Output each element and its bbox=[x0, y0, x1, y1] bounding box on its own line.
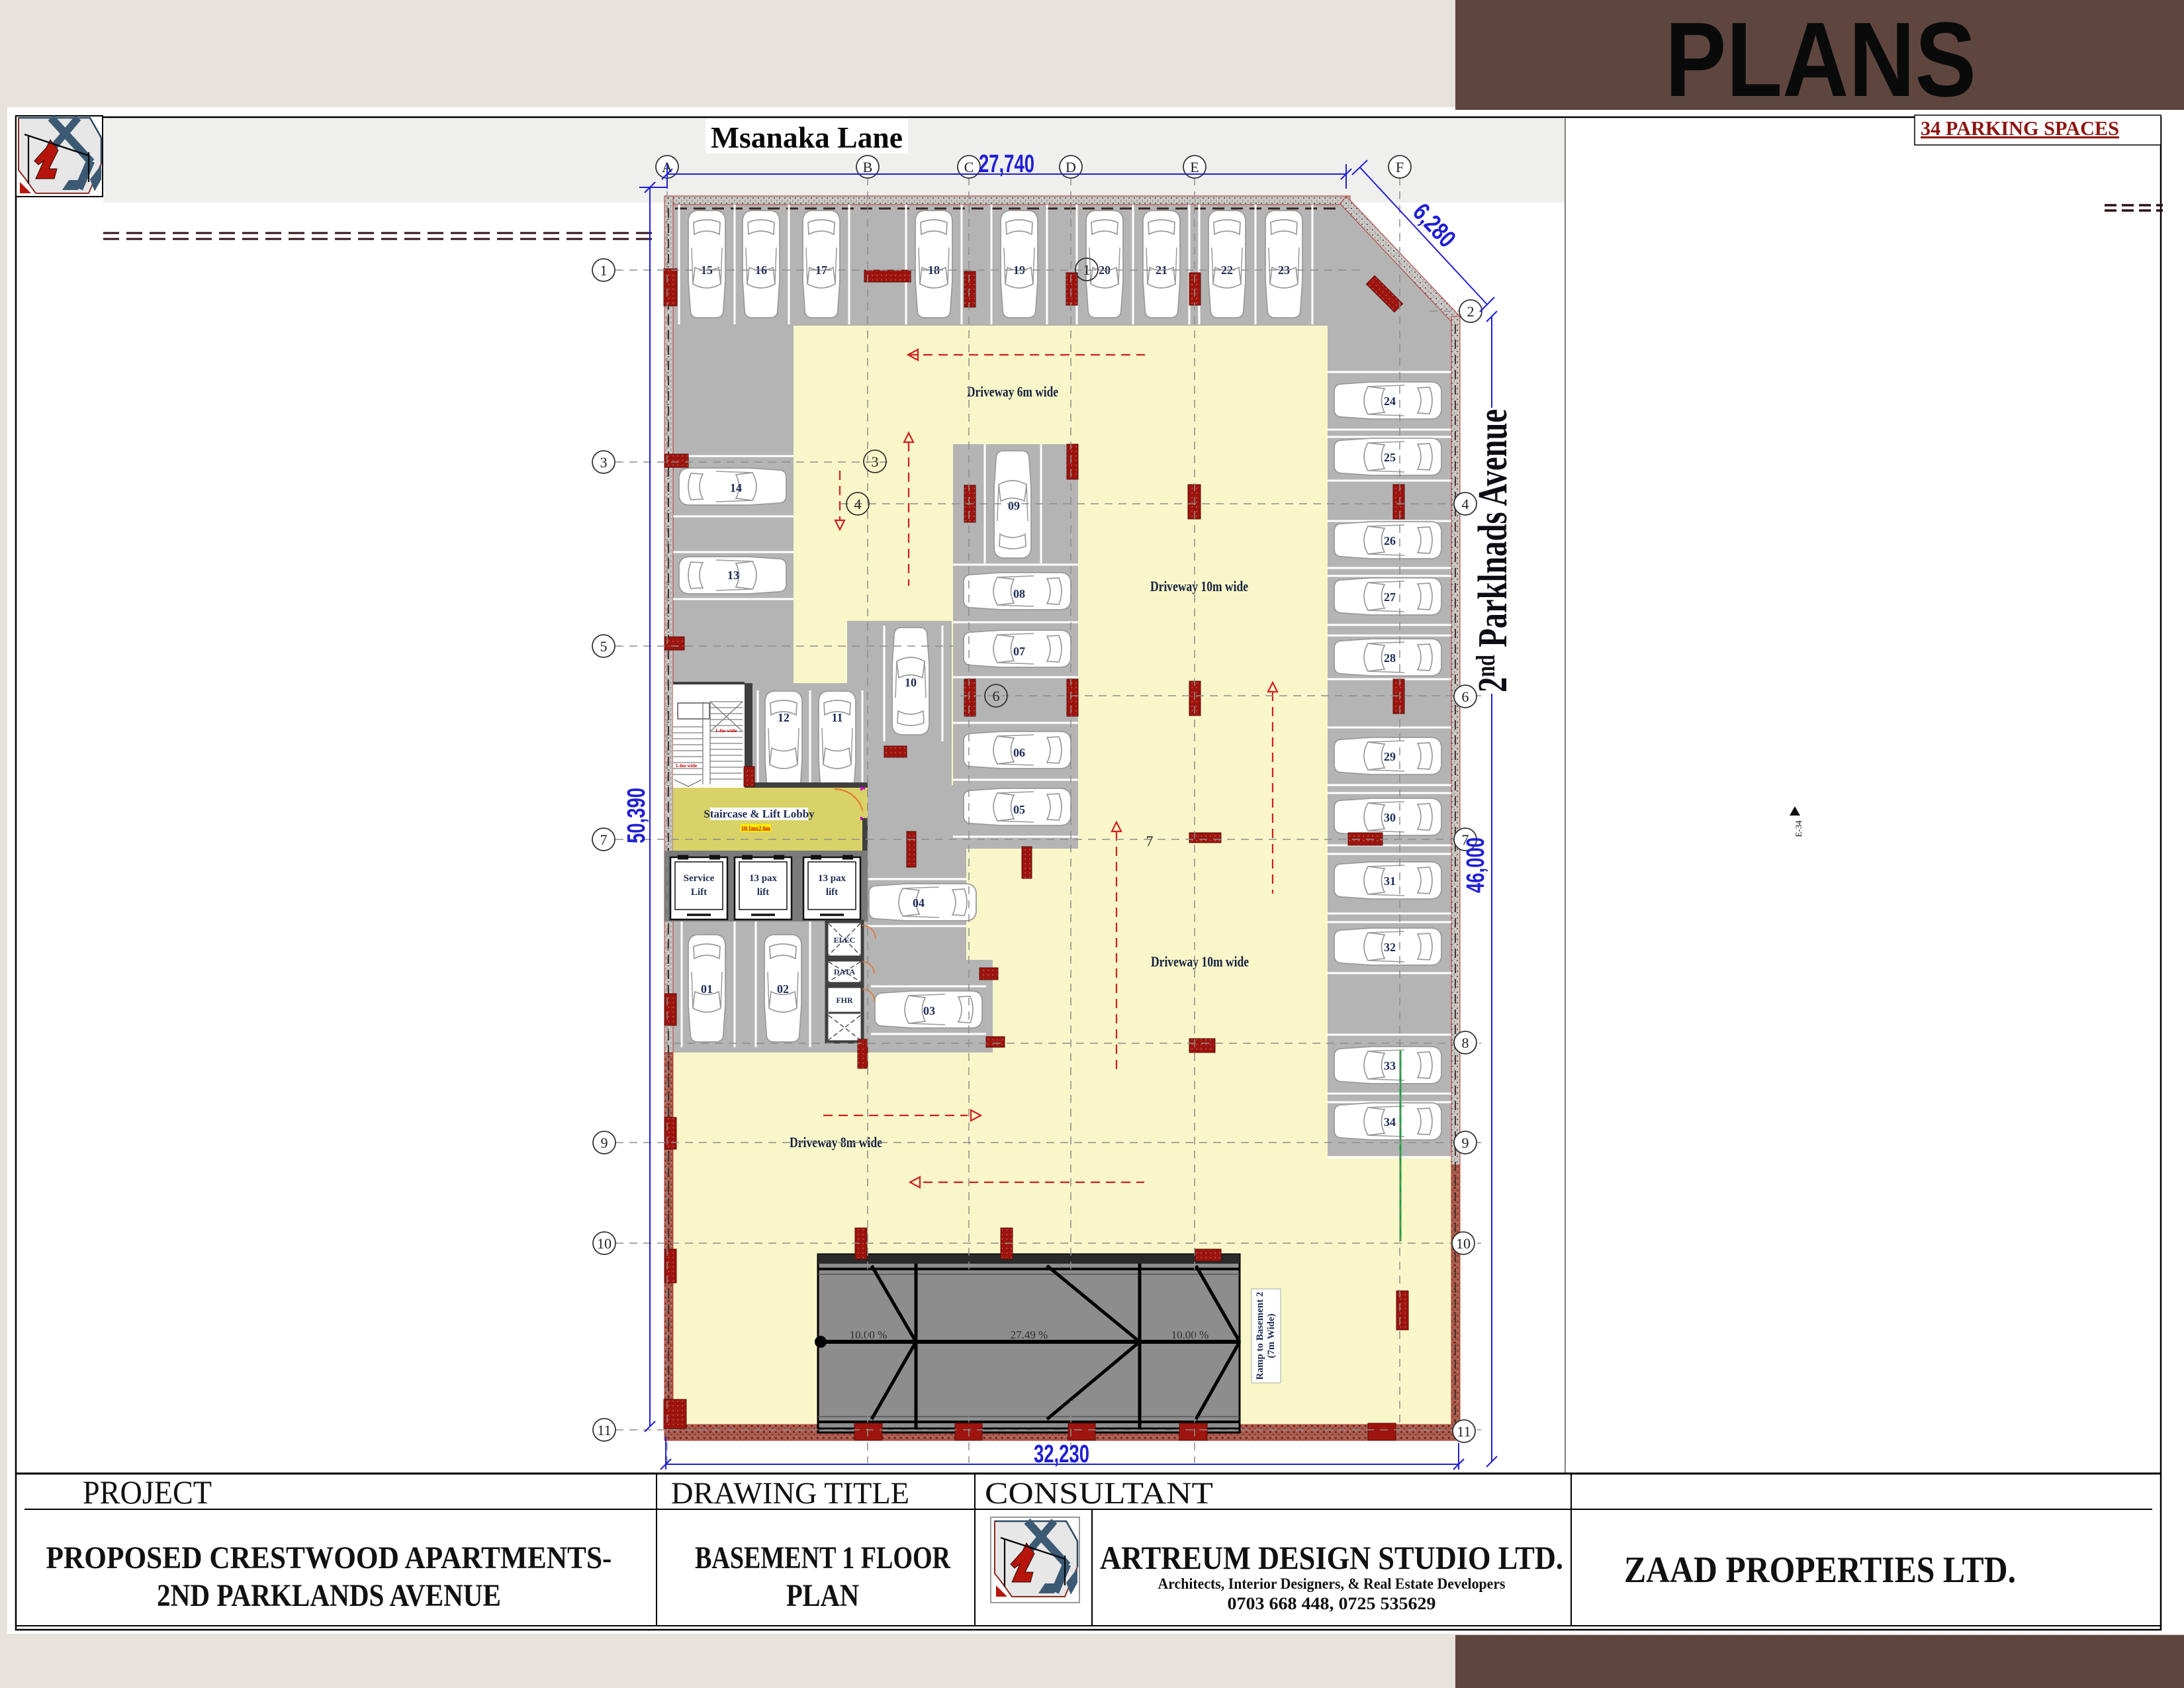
svg-text:4: 4 bbox=[854, 496, 862, 512]
svg-text:6: 6 bbox=[993, 688, 1000, 704]
svg-text:06: 06 bbox=[1013, 746, 1025, 759]
svg-text:CONSULTANT: CONSULTANT bbox=[985, 1476, 1213, 1511]
svg-text:lift: lift bbox=[826, 887, 838, 898]
svg-text:08: 08 bbox=[1013, 587, 1025, 600]
svg-text:5: 5 bbox=[600, 638, 608, 655]
svg-text:10.00 %: 10.00 % bbox=[1171, 1329, 1209, 1341]
svg-text:DATA: DATA bbox=[834, 967, 856, 976]
svg-text:31: 31 bbox=[1384, 874, 1396, 888]
svg-text:30: 30 bbox=[1384, 811, 1396, 824]
svg-text:B: B bbox=[863, 159, 873, 175]
svg-text:09: 09 bbox=[1008, 499, 1020, 512]
svg-text:12: 12 bbox=[778, 711, 790, 724]
svg-text:05: 05 bbox=[1013, 803, 1025, 816]
svg-text:F: F bbox=[1396, 159, 1404, 175]
svg-text:Driveway 10m wide: Driveway 10m wide bbox=[1150, 578, 1248, 594]
svg-text:Service: Service bbox=[684, 873, 715, 884]
svg-text:Driveway 6m wide: Driveway 6m wide bbox=[967, 383, 1058, 400]
svg-text:04: 04 bbox=[913, 896, 925, 910]
svg-text:13 pax: 13 pax bbox=[749, 873, 778, 884]
svg-text:C: C bbox=[964, 159, 974, 175]
svg-text:ZAAD PROPERTIES LTD.: ZAAD PROPERTIES LTD. bbox=[1624, 1550, 2016, 1591]
svg-text:50,390: 50,390 bbox=[623, 788, 651, 843]
svg-text:Lift: Lift bbox=[691, 887, 707, 898]
svg-text:27.49 %: 27.49 % bbox=[1011, 1329, 1048, 1341]
svg-text:02: 02 bbox=[777, 982, 789, 996]
svg-text:13: 13 bbox=[727, 569, 739, 582]
svg-text:34 PARKING SPACES: 34 PARKING SPACES bbox=[1921, 117, 2119, 140]
svg-text:10: 10 bbox=[597, 1235, 612, 1252]
svg-text:2: 2 bbox=[1467, 303, 1475, 320]
svg-text:7: 7 bbox=[1146, 833, 1154, 849]
svg-text:2ND PARKLANDS AVENUE: 2ND PARKLANDS AVENUE bbox=[157, 1578, 501, 1613]
svg-text:6: 6 bbox=[1462, 688, 1469, 705]
svg-text:27: 27 bbox=[1384, 590, 1396, 604]
svg-text:E-34: E-34 bbox=[1794, 820, 1803, 837]
svg-text:4: 4 bbox=[1462, 496, 1469, 512]
svg-text:ELEC: ELEC bbox=[834, 935, 856, 945]
svg-text:25: 25 bbox=[1384, 451, 1396, 464]
svg-text:8: 8 bbox=[1462, 1035, 1469, 1051]
svg-text:28: 28 bbox=[1384, 651, 1396, 665]
svg-text:E: E bbox=[1190, 159, 1199, 175]
svg-text:11: 11 bbox=[831, 711, 842, 724]
svg-text:1: 1 bbox=[1083, 261, 1091, 278]
svg-text:Msanaka Lane: Msanaka Lane bbox=[711, 120, 903, 154]
svg-text:Staircase & Lift Lobby: Staircase & Lift Lobby bbox=[704, 808, 815, 820]
svg-text:10.1mx2.6m: 10.1mx2.6m bbox=[741, 825, 771, 833]
svg-text:07: 07 bbox=[1013, 645, 1025, 658]
svg-text:11: 11 bbox=[1457, 1423, 1471, 1440]
svg-text:7: 7 bbox=[600, 831, 608, 848]
svg-text:34: 34 bbox=[1384, 1115, 1396, 1129]
svg-text:DRAWING TITLE: DRAWING TITLE bbox=[671, 1476, 909, 1511]
svg-text:01: 01 bbox=[701, 982, 713, 996]
svg-text:32: 32 bbox=[1384, 941, 1396, 954]
svg-text:46,000: 46,000 bbox=[1462, 837, 1490, 893]
svg-text:1.4m wide: 1.4m wide bbox=[715, 727, 737, 733]
svg-text:10: 10 bbox=[905, 676, 917, 689]
svg-text:PROPOSED CRESTWOOD APARTMENTS-: PROPOSED CRESTWOOD APARTMENTS- bbox=[46, 1540, 612, 1575]
svg-text:27,740: 27,740 bbox=[979, 150, 1034, 178]
svg-text:lift: lift bbox=[757, 887, 769, 898]
svg-text:D: D bbox=[1066, 159, 1076, 175]
svg-text:33: 33 bbox=[1384, 1059, 1396, 1072]
svg-text:14: 14 bbox=[730, 481, 742, 494]
svg-text:3: 3 bbox=[600, 454, 608, 471]
svg-text:Ramp to Basement 2: Ramp to Basement 2 bbox=[1255, 1292, 1265, 1380]
svg-text:3: 3 bbox=[872, 453, 879, 470]
svg-text:9: 9 bbox=[1462, 1135, 1469, 1151]
svg-text:ARTREUM DESIGN STUDIO LTD.: ARTREUM DESIGN STUDIO LTD. bbox=[1100, 1539, 1563, 1576]
svg-text:1: 1 bbox=[600, 262, 608, 279]
svg-text:26: 26 bbox=[1384, 534, 1396, 547]
svg-text:24: 24 bbox=[1384, 395, 1396, 408]
svg-text:PROJECT: PROJECT bbox=[83, 1474, 212, 1511]
svg-text:PLANS: PLANS bbox=[1665, 0, 1976, 118]
svg-text:PLAN: PLAN bbox=[786, 1578, 859, 1613]
svg-text:Driveway 10m wide: Driveway 10m wide bbox=[1151, 953, 1249, 970]
svg-text:BASEMENT 1 FLOOR: BASEMENT 1 FLOOR bbox=[695, 1540, 951, 1575]
svg-text:1.4m wide: 1.4m wide bbox=[676, 763, 698, 769]
svg-text:2nd Parklnads Avenue: 2nd Parklnads Avenue bbox=[1471, 409, 1516, 692]
svg-text:Architects, Interior Designers: Architects, Interior Designers, & Real E… bbox=[1158, 1575, 1506, 1592]
svg-text:9: 9 bbox=[601, 1135, 608, 1151]
svg-text:FHR: FHR bbox=[836, 996, 853, 1005]
svg-text:11: 11 bbox=[597, 1422, 611, 1438]
svg-text:0703 668 448, 0725 535629: 0703 668 448, 0725 535629 bbox=[1228, 1594, 1436, 1613]
svg-text:(7m Wide): (7m Wide) bbox=[1266, 1313, 1277, 1358]
svg-text:29: 29 bbox=[1384, 750, 1396, 763]
svg-text:03: 03 bbox=[923, 1004, 935, 1017]
svg-text:10: 10 bbox=[1456, 1235, 1471, 1252]
svg-text:10.00 %: 10.00 % bbox=[850, 1329, 887, 1341]
svg-text:32,230: 32,230 bbox=[1034, 1440, 1089, 1468]
svg-text:13 pax: 13 pax bbox=[818, 873, 846, 884]
